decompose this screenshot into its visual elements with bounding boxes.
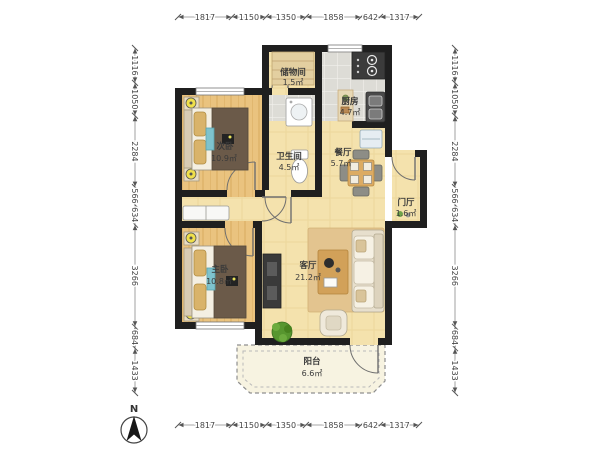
dim-value: 1817 — [195, 13, 215, 22]
tv-console — [263, 254, 281, 308]
dim-value: 1150 — [239, 421, 259, 430]
plant — [272, 322, 292, 342]
balcony-area: 6.6㎡ — [302, 369, 323, 378]
dim-value: 642 — [363, 421, 378, 430]
master-bedroom-name: 主卧 — [211, 264, 229, 275]
dim-value: 1317 — [389, 421, 409, 430]
kitchen-name: 厨房 — [341, 96, 358, 107]
bed-secondary — [184, 97, 248, 181]
dim-value: 1050 — [130, 89, 139, 109]
secondary-bedroom-area: 10.9㎡ — [211, 154, 237, 163]
dim-value: 1350 — [276, 13, 296, 22]
dining-name: 餐厅 — [333, 147, 352, 158]
bathroom-area: 4.5㎡ — [279, 163, 300, 172]
dim-value: 684 — [450, 330, 459, 345]
north-label: N — [130, 404, 138, 415]
window-kitchen — [328, 45, 362, 52]
dim-value: 1858 — [323, 13, 343, 22]
entry-area: 1.6㎡ — [396, 209, 417, 218]
master-bedroom-area: 10.8㎡ — [206, 277, 232, 286]
coffee-table — [318, 250, 348, 294]
living-area: 21.2㎡ — [295, 273, 321, 282]
dim-value: 2284 — [450, 141, 459, 161]
kitchen-area: 4.7㎡ — [340, 108, 361, 117]
sofa — [352, 230, 384, 312]
dim-value: 3266 — [450, 266, 459, 286]
storage-name: 储物间 — [279, 67, 306, 78]
dim-value: 1116 — [130, 55, 139, 75]
balcony-name: 阳台 — [303, 356, 321, 367]
dimension-bottom: 18171150135018586421317 — [175, 421, 422, 430]
dining-area: 5.7㎡ — [331, 159, 352, 168]
window-secondary-bedroom — [196, 88, 244, 95]
floor-plan-canvas: 储物间 1.5㎡ 厨房 4.7㎡ 卫生间 4.5㎡ 餐厅 5.7㎡ 门厅 1.6… — [0, 0, 600, 450]
dim-value: 1150 — [239, 13, 259, 22]
dim-value: 634 — [450, 207, 459, 222]
dimension-top: 18171150135018586421317 — [175, 13, 422, 22]
dim-value: 1050 — [450, 89, 459, 109]
dim-value: 1433 — [130, 360, 139, 380]
dim-value: 1116 — [450, 55, 459, 75]
dim-value: 2284 — [130, 141, 139, 161]
armchair — [320, 310, 347, 336]
floor-plan-screenshot: 储物间 1.5㎡ 厨房 4.7㎡ 卫生间 4.5㎡ 餐厅 5.7㎡ 门厅 1.6… — [0, 0, 600, 450]
storage-area: 1.5㎡ — [283, 78, 304, 87]
window-master-bedroom — [196, 322, 244, 329]
living-name: 客厅 — [298, 260, 317, 271]
dim-value: 566 — [450, 188, 459, 203]
dim-value: 1858 — [323, 421, 343, 430]
dimension-right: 11161050228456663432666841433 — [450, 45, 459, 396]
dim-value: 1817 — [195, 421, 215, 430]
bathroom-name: 卫生间 — [276, 151, 302, 162]
dim-value: 3266 — [130, 266, 139, 286]
entry-name: 门厅 — [397, 197, 415, 208]
dim-value: 1350 — [276, 421, 296, 430]
secondary-bedroom-name: 次卧 — [216, 141, 234, 152]
dimension-left: 11161050228456663432666841433 — [130, 45, 139, 396]
dim-value: 634 — [130, 207, 139, 222]
dim-value: 684 — [130, 330, 139, 345]
dim-value: 566 — [130, 188, 139, 203]
dim-value: 642 — [363, 13, 378, 22]
north-indicator: N — [121, 404, 147, 443]
dim-value: 1433 — [450, 360, 459, 380]
dim-value: 1317 — [389, 13, 409, 22]
